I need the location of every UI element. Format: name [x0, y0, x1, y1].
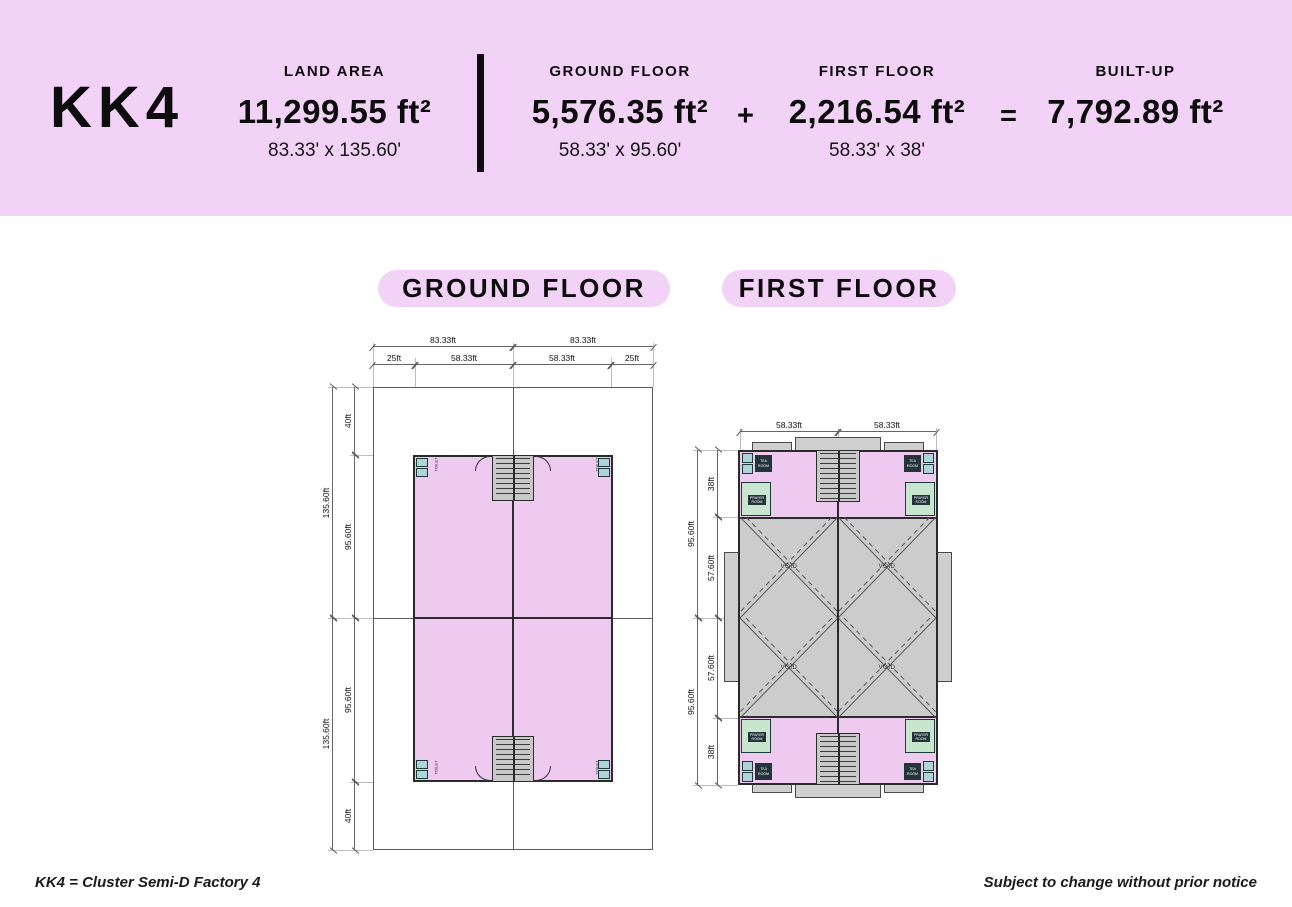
model-name: KK4: [50, 74, 184, 141]
staircase: [492, 736, 534, 782]
prayer-room: PRAYER ROOM: [741, 719, 771, 753]
dim-first-left-overall-2: 95.60ft: [697, 618, 698, 785]
dim-first-top-2: 58.33ft: [838, 431, 936, 432]
ground-floor-pill: GROUND FLOOR: [378, 270, 670, 307]
prayer-room: PRAYER ROOM: [741, 482, 771, 516]
canopy-tab: [795, 783, 881, 798]
dim-first-left-1: 38ft: [717, 450, 718, 517]
prayer-room-label: PRAYER ROOM: [748, 495, 766, 505]
dim-ground-top-overall-1: 83.33ft: [373, 346, 513, 347]
equals-sign: =: [1000, 100, 1017, 133]
first-floor-dims: 58.33' x 38': [762, 140, 992, 162]
ground-floor-dims: 58.33' x 95.60': [505, 140, 735, 162]
void-label: VOID: [781, 564, 798, 570]
tea-room-label: TEA ROOM: [904, 763, 921, 780]
dim-ground-left-4: 40ft: [354, 782, 355, 850]
tea-room-label: TEA ROOM: [755, 763, 772, 780]
builtup-label: BUILT-UP: [1028, 63, 1243, 80]
dim-ground-left-3: 95.60ft: [354, 618, 355, 782]
plus-sign: +: [737, 100, 754, 133]
dim-ground-top-2: 58.33ft: [415, 364, 513, 365]
ground-floor-label: GROUND FLOOR: [505, 63, 735, 80]
dim-first-top-1: 58.33ft: [740, 431, 838, 432]
dim-ground-top-3: 58.33ft: [513, 364, 611, 365]
footer-disclaimer: Subject to change without prior notice: [984, 874, 1257, 891]
prayer-room: PRAYER ROOM: [905, 482, 935, 516]
void-label: VOID: [879, 564, 896, 570]
staircase: [492, 455, 534, 501]
first-floor-column: FIRST FLOOR 2,216.54 ft² 58.33' x 38': [762, 63, 992, 162]
builtup-value: 7,792.89 ft²: [1028, 93, 1243, 131]
prayer-room-label: PRAYER ROOM: [748, 732, 766, 742]
toilet-label: TOILET: [594, 761, 599, 775]
first-floor-pill: FIRST FLOOR: [722, 270, 956, 307]
land-area-dims: 83.33' x 135.60': [212, 140, 457, 162]
dim-ground-top-overall-2: 83.33ft: [513, 346, 653, 347]
first-floor-value: 2,216.54 ft²: [762, 93, 992, 131]
toilet-label: TOILET: [433, 458, 438, 472]
header-band: KK4 LAND AREA 11,299.55 ft² 83.33' x 135…: [0, 0, 1292, 216]
dim-first-left-4: 38ft: [717, 718, 718, 785]
dim-first-left-3: 57.60ft: [717, 618, 718, 718]
dim-ground-left-overall-2: 135.60ft: [332, 618, 333, 850]
side-tab: [724, 552, 739, 682]
dim-ground-left-1: 40ft: [354, 387, 355, 455]
prayer-room: PRAYER ROOM: [905, 719, 935, 753]
ground-floor-value: 5,576.35 ft²: [505, 93, 735, 131]
staircase: [816, 450, 860, 502]
builtup-column: BUILT-UP 7,792.89 ft²: [1028, 63, 1243, 131]
dim-ground-left-2: 95.60ft: [354, 455, 355, 618]
prayer-room-label: PRAYER ROOM: [912, 495, 930, 505]
dim-ground-left-overall-1: 135.60ft: [332, 387, 333, 618]
toilet-label: TOILET: [433, 761, 438, 775]
void-label: VOID: [879, 665, 896, 671]
land-area-label: LAND AREA: [212, 63, 457, 80]
tea-room-label: TEA ROOM: [755, 455, 772, 472]
header-divider: [477, 54, 484, 172]
land-area-column: LAND AREA 11,299.55 ft² 83.33' x 135.60': [212, 63, 457, 162]
toilet-label: TOILET: [594, 458, 599, 472]
dim-ground-top-1: 25ft: [373, 364, 415, 365]
prayer-room-label: PRAYER ROOM: [912, 732, 930, 742]
footer-legend: KK4 = Cluster Semi-D Factory 4: [35, 874, 261, 891]
dim-ground-top-4: 25ft: [611, 364, 653, 365]
ground-floor-column: GROUND FLOOR 5,576.35 ft² 58.33' x 95.60…: [505, 63, 735, 162]
side-tab: [937, 552, 952, 682]
dim-first-left-2: 57.60ft: [717, 517, 718, 618]
dim-first-left-overall-1: 95.60ft: [697, 450, 698, 618]
land-area-value: 11,299.55 ft²: [212, 93, 457, 131]
first-floor-label: FIRST FLOOR: [762, 63, 992, 80]
staircase: [816, 733, 860, 785]
void-label: VOID: [781, 665, 798, 671]
party-wall: [413, 617, 613, 619]
tea-room-label: TEA ROOM: [904, 455, 921, 472]
